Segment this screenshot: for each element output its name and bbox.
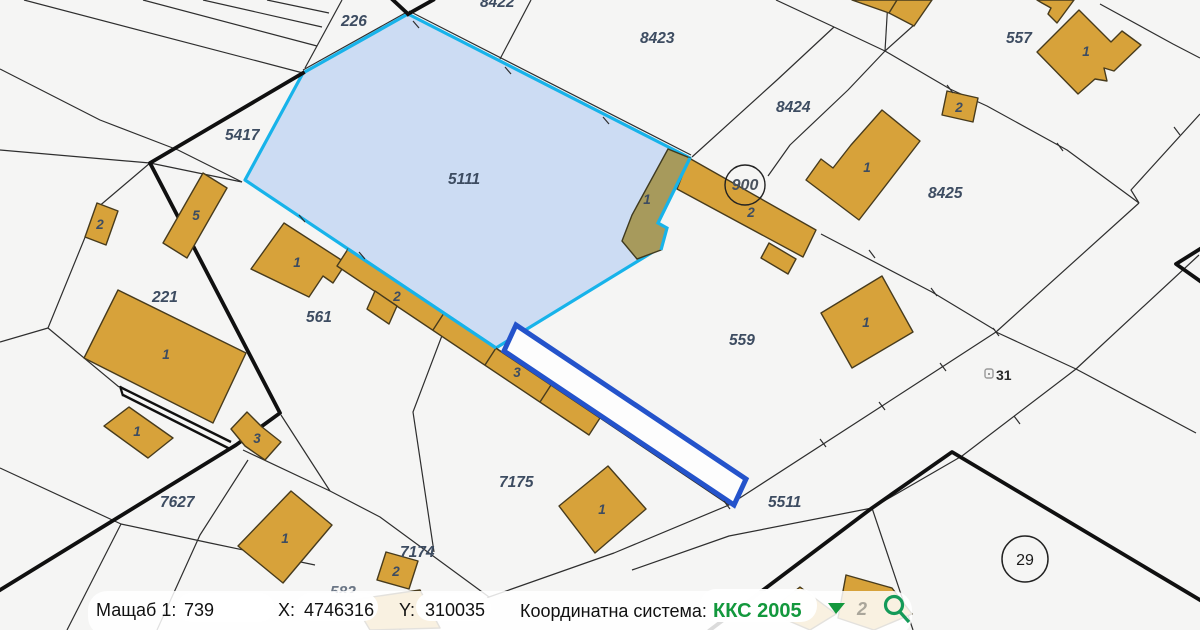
svg-text:5: 5 [192, 208, 200, 223]
svg-text:2: 2 [391, 564, 400, 579]
svg-text:2: 2 [954, 100, 963, 115]
svg-text:ККС 2005: ККС 2005 [713, 600, 802, 622]
svg-text:1: 1 [1082, 44, 1090, 59]
svg-text:2: 2 [95, 217, 104, 232]
svg-text:Y:: Y: [399, 600, 415, 620]
svg-text:7627: 7627 [160, 494, 196, 511]
svg-text:2: 2 [746, 205, 755, 220]
svg-text:1: 1 [133, 424, 141, 439]
svg-text:2: 2 [856, 599, 867, 619]
svg-text:8424: 8424 [776, 99, 811, 116]
svg-text:739: 739 [184, 600, 214, 620]
svg-text:8425: 8425 [928, 185, 963, 202]
svg-text:4746316: 4746316 [304, 600, 374, 620]
svg-text:8422: 8422 [480, 0, 515, 11]
svg-text:557: 557 [1006, 30, 1033, 47]
svg-text:5511: 5511 [768, 494, 801, 511]
svg-text:1: 1 [863, 160, 871, 175]
svg-text:3: 3 [253, 431, 261, 446]
svg-text:X:: X: [278, 600, 295, 620]
svg-text:5417: 5417 [225, 127, 261, 144]
svg-text:1: 1 [162, 347, 170, 362]
svg-text:1: 1 [281, 531, 289, 546]
svg-text:1: 1 [862, 315, 870, 330]
svg-text:7174: 7174 [400, 544, 435, 561]
svg-text:561: 561 [306, 309, 332, 326]
svg-text:2: 2 [392, 289, 401, 304]
svg-text:221: 221 [151, 289, 178, 306]
svg-text:5111: 5111 [448, 171, 480, 188]
svg-text:310035: 310035 [425, 600, 485, 620]
svg-text:Мащаб 1:: Мащаб 1: [96, 600, 176, 620]
svg-text:226: 226 [340, 13, 367, 30]
svg-text:3: 3 [513, 365, 521, 380]
svg-text:900: 900 [732, 177, 759, 194]
svg-text:559: 559 [729, 332, 755, 349]
svg-text:31: 31 [996, 367, 1012, 383]
svg-text:7175: 7175 [499, 474, 534, 491]
svg-text:1: 1 [598, 502, 606, 517]
svg-text:Координатна система:: Координатна система: [520, 601, 707, 621]
svg-text:8423: 8423 [640, 30, 675, 47]
svg-text:29: 29 [1016, 552, 1034, 569]
svg-text:1: 1 [293, 255, 301, 270]
svg-text:1: 1 [643, 192, 651, 207]
